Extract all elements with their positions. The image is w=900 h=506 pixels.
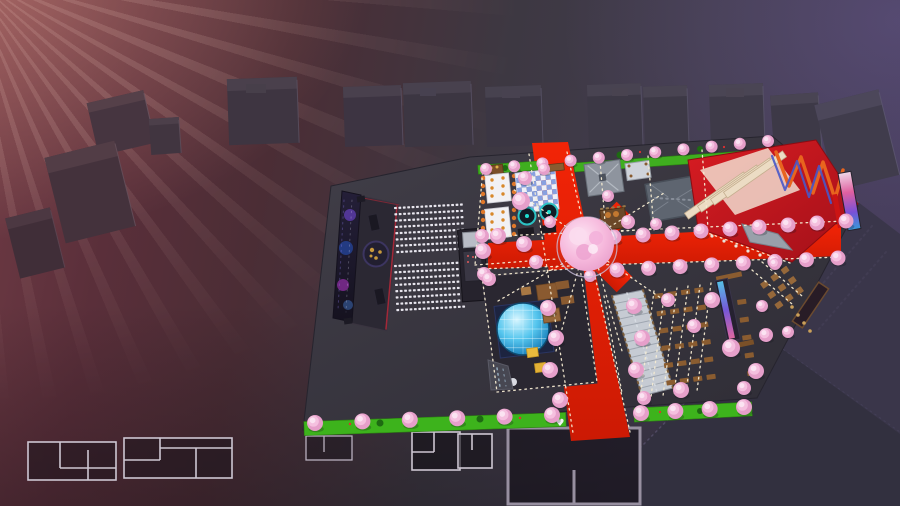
play-mat [518,227,535,237]
stage-speaker [344,317,353,324]
rooftop-unit [502,90,520,98]
tower-left-4 [149,117,181,155]
exhibit-zone [482,268,597,393]
tower-top-3 [403,81,473,147]
stage-speaker [357,195,366,202]
screen-glow [343,300,353,310]
tower-top-2 [343,85,403,147]
rooftop-unit [726,88,744,97]
floor-plans [28,428,640,504]
yellow-seat [526,347,538,357]
floorplan-5 [458,434,492,468]
floorplan-4 [412,432,460,470]
pavilion-cap [599,174,607,182]
tower-left-2 [44,141,135,244]
floorplan-3 [306,436,352,460]
tower-top-6 [643,85,689,146]
venue-3d-scene: ♥ [0,0,900,506]
screen-glow [339,241,353,255]
dj-booth [364,242,389,267]
screen-glow [344,209,356,221]
tower-left-3 [5,207,65,278]
rooftop-unit [246,84,266,93]
crate [536,283,558,301]
night-sky-background: ♥ [0,0,900,506]
central-tree [557,217,617,277]
central-sakura-tree [557,217,617,277]
rooftop-unit [612,88,628,96]
dining-table-a [485,173,512,203]
screenshot-root: ♥ [0,0,900,506]
main-stage [333,191,399,331]
crate-small [520,286,531,295]
floorplan-1 [28,442,116,480]
rooftop-unit [420,88,436,96]
floorplan-2 [124,438,232,478]
